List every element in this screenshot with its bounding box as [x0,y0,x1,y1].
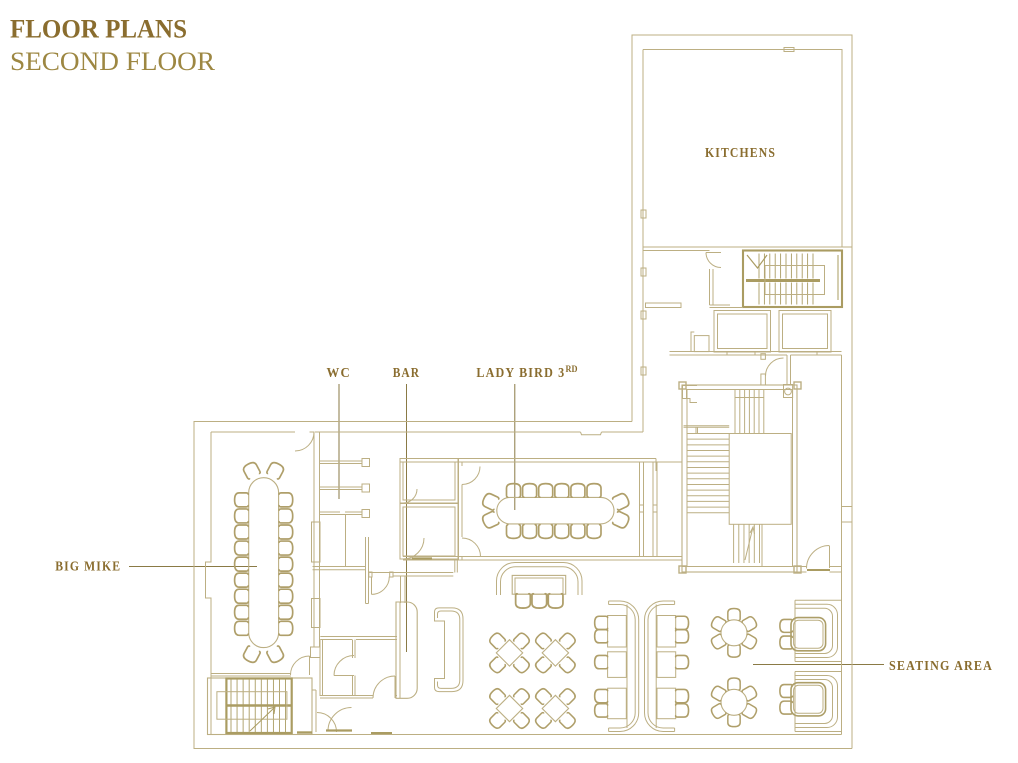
svg-text:BIG MIKE: BIG MIKE [55,559,121,574]
svg-text:SEATING AREA: SEATING AREA [889,658,993,673]
svg-text:LADY BIRD 3: LADY BIRD 3 [476,365,565,380]
svg-text:WC: WC [327,365,352,380]
svg-text:FLOOR PLANS: FLOOR PLANS [10,15,187,44]
svg-text:KITCHENS: KITCHENS [705,145,776,160]
svg-text:SECOND FLOOR: SECOND FLOOR [10,47,216,76]
svg-text:RD: RD [566,364,578,374]
svg-text:BAR: BAR [393,365,421,380]
